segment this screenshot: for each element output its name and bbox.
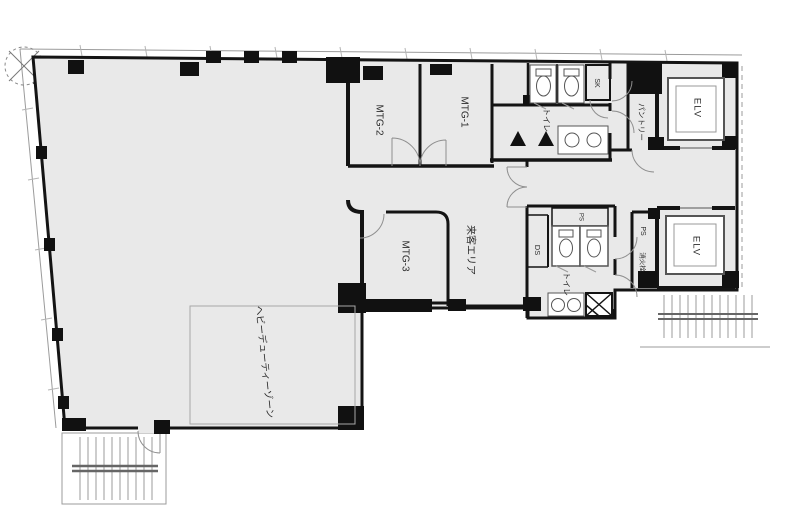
stairs-right — [658, 295, 758, 338]
label-mtg2: MTG-2 — [373, 104, 384, 136]
stairs-bottom-left — [62, 424, 166, 504]
label-ps-fire: PS — [639, 226, 646, 236]
label-toilet-upper: トイレ — [542, 108, 551, 132]
label-mtg3: MTG-3 — [399, 240, 410, 272]
label-toilet-lower: トイレ — [562, 272, 571, 296]
label-pantry: パントリー — [637, 103, 646, 141]
label-ds: DS — [533, 245, 542, 255]
label-mtg1: MTG-1 — [458, 96, 469, 128]
label-visitor-area: 来客エリア — [464, 225, 477, 275]
elevator-upper-label: ELV — [691, 98, 702, 118]
elevator-upper: ELV — [668, 78, 724, 152]
label-ps-shaft: PS — [577, 213, 583, 221]
elevator-lower-label: ELV — [690, 236, 701, 256]
floor-plan: ELV ELV — [0, 0, 787, 529]
sink-icon — [548, 293, 584, 316]
sink-icon — [558, 126, 608, 154]
sk-hatch-icon — [586, 293, 612, 316]
label-sk-upper: SK — [593, 78, 600, 88]
label-fire-hydrant: 消火栓 — [638, 252, 647, 272]
